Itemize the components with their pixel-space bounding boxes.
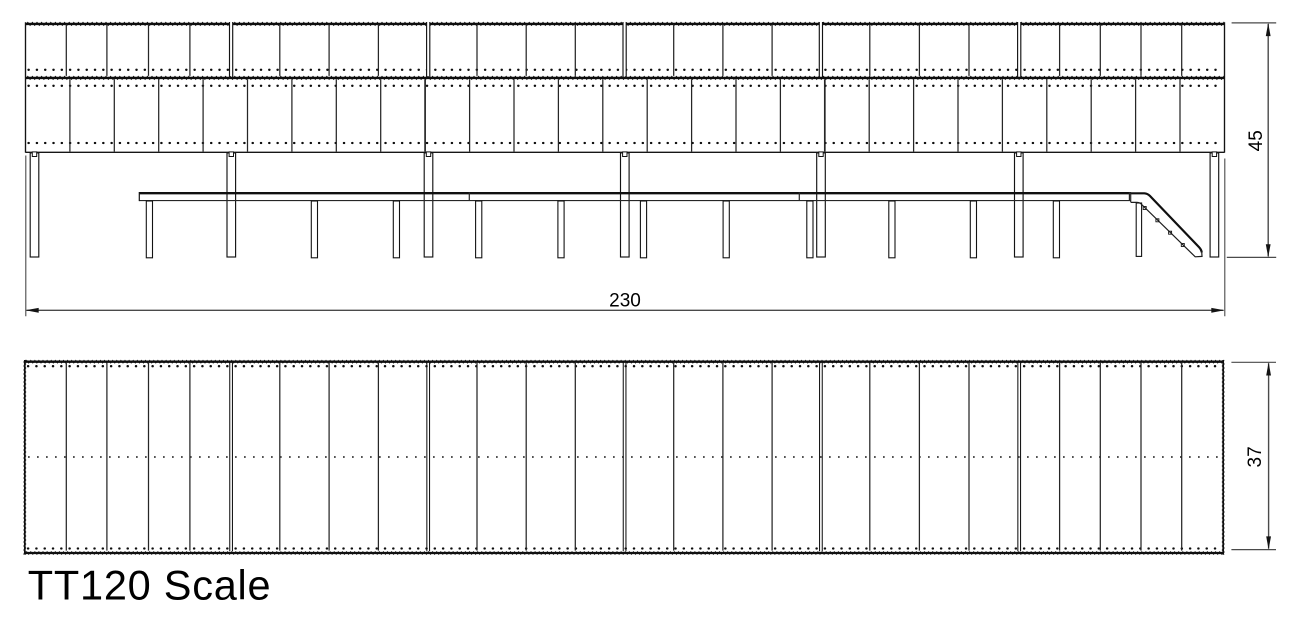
svg-text:TT120 Scale: TT120 Scale bbox=[28, 562, 272, 609]
svg-text:230: 230 bbox=[609, 290, 641, 311]
svg-text:45: 45 bbox=[1246, 130, 1267, 151]
svg-text:37: 37 bbox=[1245, 446, 1266, 467]
